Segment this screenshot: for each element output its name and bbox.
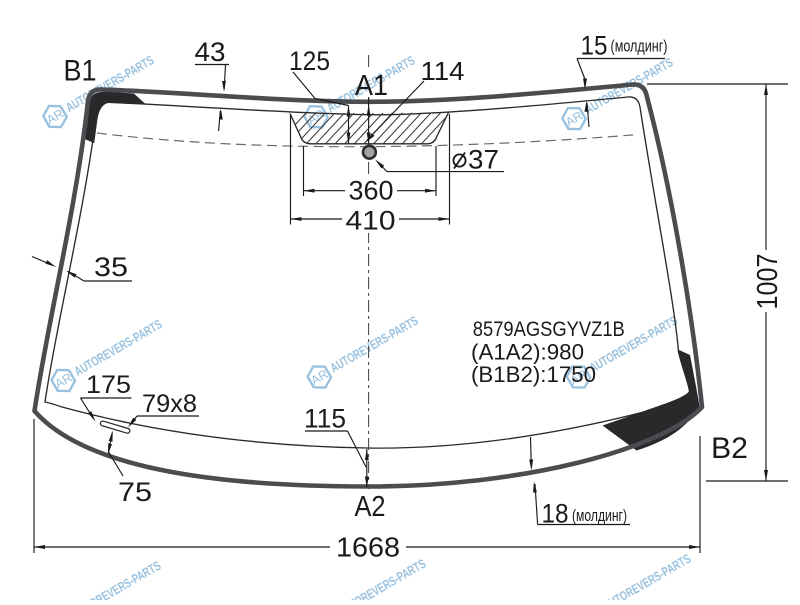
- svg-text:43: 43: [195, 37, 226, 67]
- svg-text:15: 15: [581, 31, 608, 61]
- svg-text:35: 35: [94, 252, 128, 282]
- svg-text:114: 114: [421, 56, 465, 86]
- svg-text:1007: 1007: [752, 254, 784, 310]
- svg-text:115: 115: [304, 404, 346, 434]
- svg-text:(молдинг): (молдинг): [611, 38, 668, 56]
- svg-text:(A1A2):980: (A1A2):980: [471, 340, 584, 365]
- svg-text:A2: A2: [355, 491, 386, 523]
- svg-text:8579AGSGYVZ1B: 8579AGSGYVZ1B: [473, 318, 625, 341]
- svg-text:410: 410: [346, 206, 396, 236]
- svg-text:175: 175: [86, 371, 131, 399]
- svg-text:B1: B1: [64, 55, 97, 88]
- svg-text:1668: 1668: [336, 532, 400, 563]
- svg-text:75: 75: [118, 477, 152, 507]
- svg-text:A1: A1: [355, 70, 388, 102]
- svg-text:125: 125: [289, 46, 330, 76]
- svg-text:B2: B2: [711, 432, 748, 465]
- svg-text:79x8: 79x8: [142, 390, 197, 418]
- svg-text:(B1B2):1750: (B1B2):1750: [471, 362, 596, 387]
- svg-text:360: 360: [349, 176, 394, 206]
- svg-text:37: 37: [468, 145, 499, 175]
- svg-text:(молдинг): (молдинг): [572, 507, 627, 525]
